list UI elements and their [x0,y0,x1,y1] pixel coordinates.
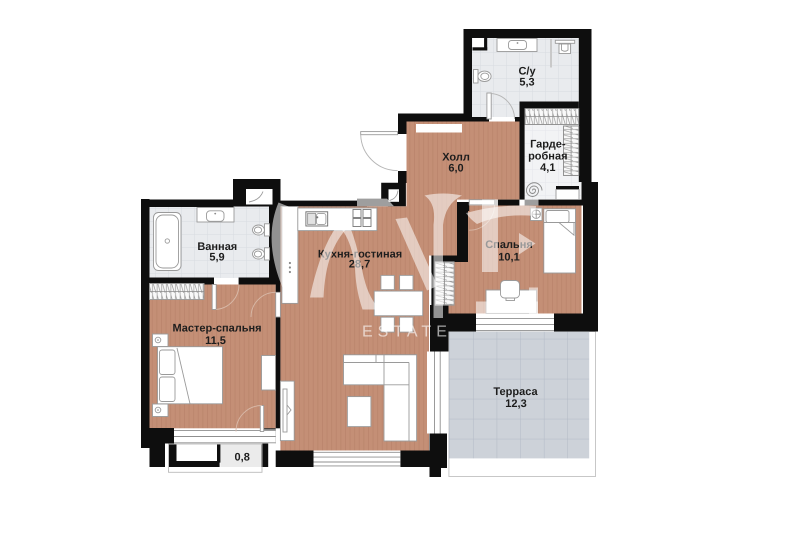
svg-text:5,3: 5,3 [519,77,534,89]
svg-text:0,8: 0,8 [235,452,250,464]
svg-text:6,0: 6,0 [448,163,463,175]
svg-text:Терраса: Терраса [493,386,538,398]
svg-text:10,1: 10,1 [498,252,519,264]
svg-text:4,1: 4,1 [540,162,555,174]
svg-text:5,9: 5,9 [209,251,224,263]
svg-text:ESTATE: ESTATE [362,324,452,341]
svg-text:робная: робная [528,151,567,163]
svg-text:11,5: 11,5 [205,335,226,347]
svg-text:12,3: 12,3 [505,398,526,410]
svg-text:Гарде-: Гарде- [530,139,566,151]
svg-text:Мастер-спальня: Мастер-спальня [172,323,261,335]
